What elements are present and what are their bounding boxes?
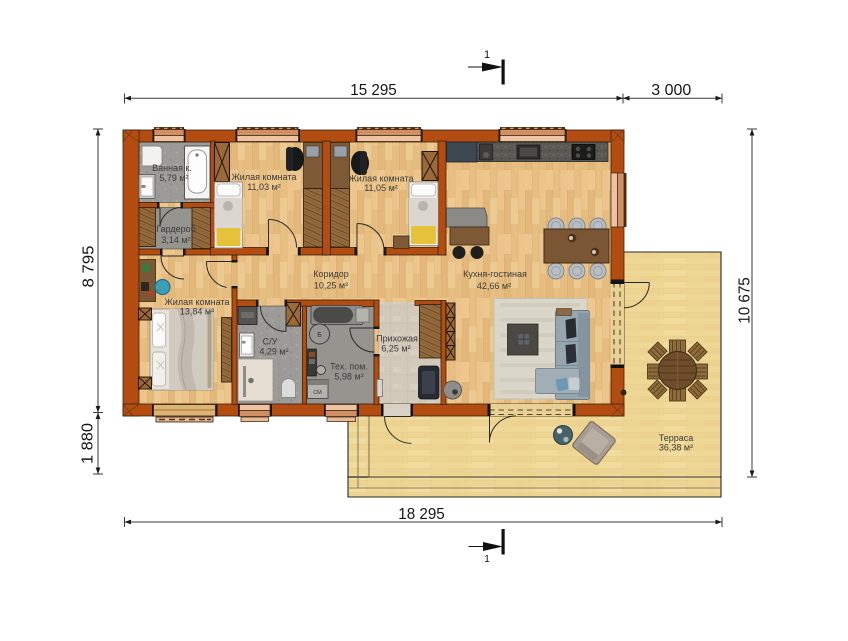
svg-text:8 795: 8 795 (81, 245, 98, 287)
svg-text:15 295: 15 295 (350, 82, 397, 99)
svg-text:13,84 м²: 13,84 м² (180, 307, 214, 317)
svg-text:Жилая комната: Жилая комната (348, 174, 413, 184)
svg-text:Тех. пом.: Тех. пом. (330, 362, 368, 372)
svg-text:Прихожая: Прихожая (376, 334, 418, 344)
svg-text:Терраса: Терраса (659, 433, 694, 443)
svg-text:10,25 м²: 10,25 м² (314, 281, 348, 291)
svg-text:4,29 м²: 4,29 м² (259, 347, 288, 357)
svg-text:Кухня-гостиная: Кухня-гостиная (463, 269, 527, 279)
svg-text:1 880: 1 880 (80, 423, 97, 464)
svg-text:36,38 м²: 36,38 м² (659, 443, 693, 453)
svg-text:1: 1 (484, 554, 490, 565)
svg-text:6,25 м²: 6,25 м² (381, 344, 410, 354)
svg-text:5,98 м²: 5,98 м² (334, 372, 363, 382)
svg-text:Гардероб: Гардероб (156, 224, 196, 234)
svg-text:3,14 м²: 3,14 м² (161, 235, 190, 245)
svg-text:С/У: С/У (263, 337, 278, 347)
svg-text:42,66 м²: 42,66 м² (477, 281, 511, 291)
svg-text:10 675: 10 675 (737, 277, 754, 324)
svg-text:11,05 м²: 11,05 м² (364, 183, 398, 193)
svg-text:Б: Б (317, 332, 322, 339)
svg-text:Ванная к.: Ванная к. (152, 163, 192, 173)
svg-text:5,79 м²: 5,79 м² (159, 173, 188, 183)
svg-text:11,03 м²: 11,03 м² (247, 182, 281, 192)
svg-text:18 295: 18 295 (398, 506, 445, 523)
svg-text:СМ: СМ (313, 390, 322, 396)
svg-text:Жилая комната: Жилая комната (231, 172, 296, 182)
svg-text:Жилая комната: Жилая комната (164, 297, 229, 307)
svg-text:1: 1 (484, 49, 490, 61)
svg-text:Коридор: Коридор (313, 269, 349, 279)
svg-text:3 000: 3 000 (651, 82, 691, 99)
